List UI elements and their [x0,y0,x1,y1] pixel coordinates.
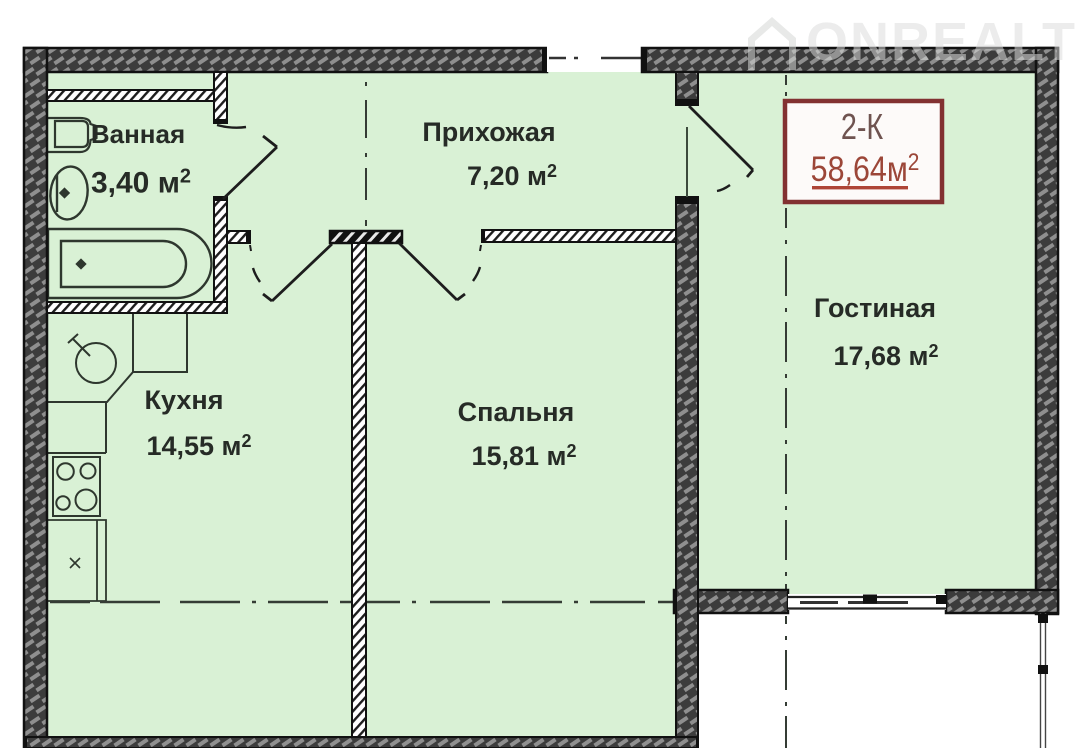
svg-text:ONREALT: ONREALT [806,12,1077,72]
svg-text:2-К: 2-К [841,106,883,147]
svg-text:7,20 м2: 7,20 м2 [467,161,557,191]
svg-text:Спальня: Спальня [458,397,575,427]
svg-text:15,81 м2: 15,81 м2 [471,441,576,471]
svg-text:58,64м2: 58,64м2 [811,149,920,189]
svg-text:17,68 м2: 17,68 м2 [833,341,938,371]
svg-text:Кухня: Кухня [145,385,224,415]
svg-text:14,55 м2: 14,55 м2 [146,431,251,461]
svg-text:Гостиная: Гостиная [814,293,936,323]
svg-text:3,40 м2: 3,40 м2 [91,166,191,200]
svg-text:Прихожая: Прихожая [422,117,555,147]
svg-text:Ванная: Ванная [91,119,185,149]
